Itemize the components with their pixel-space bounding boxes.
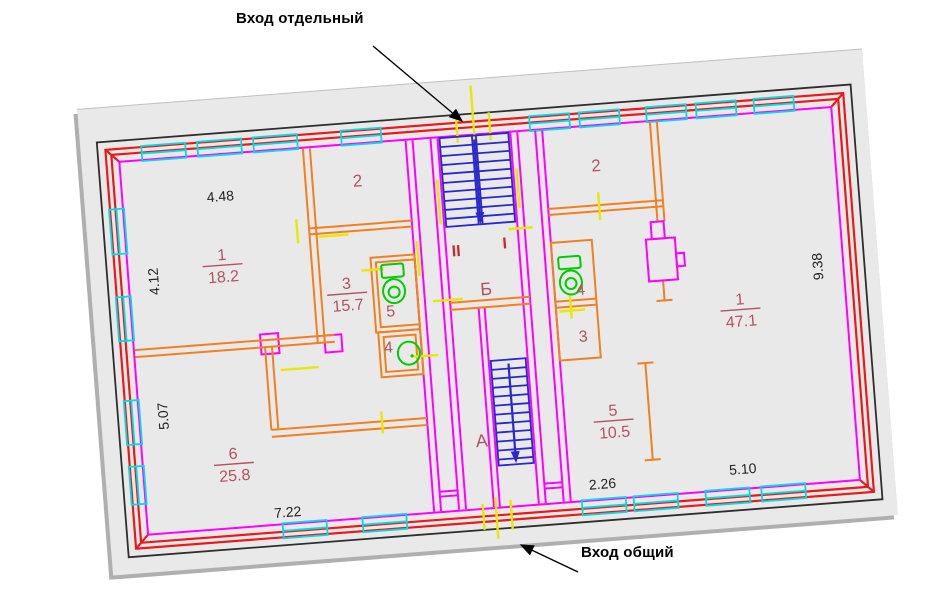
room-number: 1 [217,247,227,265]
room-number: 3 [578,328,588,346]
dimension: 4.12 [145,267,163,296]
room-area: 10.5 [598,423,630,442]
room-number: 4 [383,339,393,357]
flight-numeral: I [502,235,508,252]
dimension: 7.22 [274,503,303,521]
room-area: 15.7 [332,296,364,315]
entrance-common-label: Вход общий [581,544,674,561]
dimension: 4.48 [206,187,235,205]
boiler-symbol [645,220,686,282]
room-number: 2 [352,171,363,191]
room-number: 4 [575,281,585,299]
toilet-icon [381,263,406,304]
room-number: 3 [341,275,351,293]
dimension: 5.07 [154,402,172,431]
room-area: 47.1 [725,312,757,331]
entrance-separate-label: Вход отдельный [236,10,364,27]
room-area: 18.2 [207,268,239,287]
room-area: 25.8 [219,467,251,486]
entrance-common-arrow [521,545,578,572]
dimension: 2.26 [588,475,617,493]
room-number: 2 [591,156,602,176]
flight-numeral: II [451,243,461,261]
room-number: 6 [228,446,238,464]
stairs-upper [439,133,515,227]
floor-plan-drawing: 1 18.2 2 3 15.7 5 4 6 25.8 2 4 3 5 10.5 … [77,49,898,575]
room-number: 5 [386,303,396,321]
interior-main-walls [246,130,571,524]
dimension: 9.38 [808,252,826,281]
dimension: 5.10 [729,460,758,478]
room-number: 1 [735,291,745,309]
section-letter: Б [480,279,493,300]
room-number: 5 [608,402,618,420]
stairs-lower [491,358,534,465]
plan-sheet: 1 18.2 2 3 15.7 5 4 6 25.8 2 4 3 5 10.5 … [77,49,898,575]
section-letter: А [475,430,489,451]
